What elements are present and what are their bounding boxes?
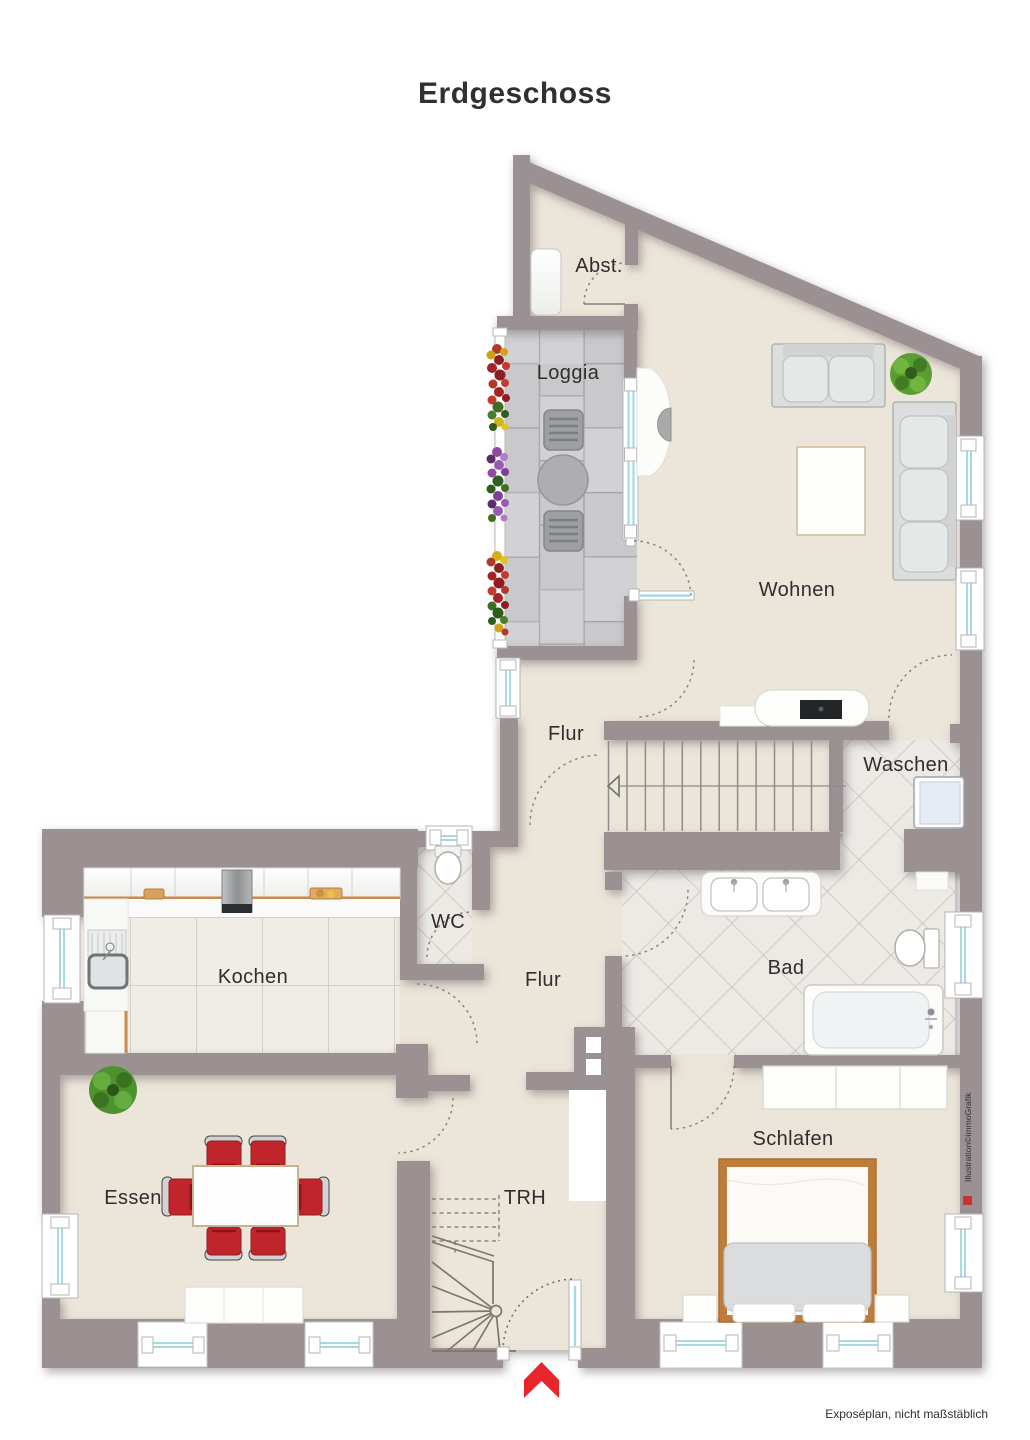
svg-text:Kochen: Kochen [218,966,288,988]
svg-text:Flur: Flur [548,723,584,745]
svg-text:Bad: Bad [768,957,805,979]
svg-text:Loggia: Loggia [537,362,600,384]
svg-text:Waschen: Waschen [863,754,948,776]
svg-text:Flur: Flur [525,969,561,991]
svg-text:Abst.: Abst. [575,255,623,277]
svg-text:Schlafen: Schlafen [752,1128,833,1150]
svg-text:Exposéplan, nicht maßstäblich: Exposéplan, nicht maßstäblich [825,1407,988,1421]
svg-text:WC: WC [431,911,465,933]
svg-text:Essen: Essen [104,1187,162,1209]
svg-text:Illustration©immoGrafik: Illustration©immoGrafik [963,1092,973,1182]
svg-text:TRH: TRH [504,1187,546,1209]
svg-text:Erdgeschoss: Erdgeschoss [418,77,612,110]
svg-text:Wohnen: Wohnen [759,579,836,601]
